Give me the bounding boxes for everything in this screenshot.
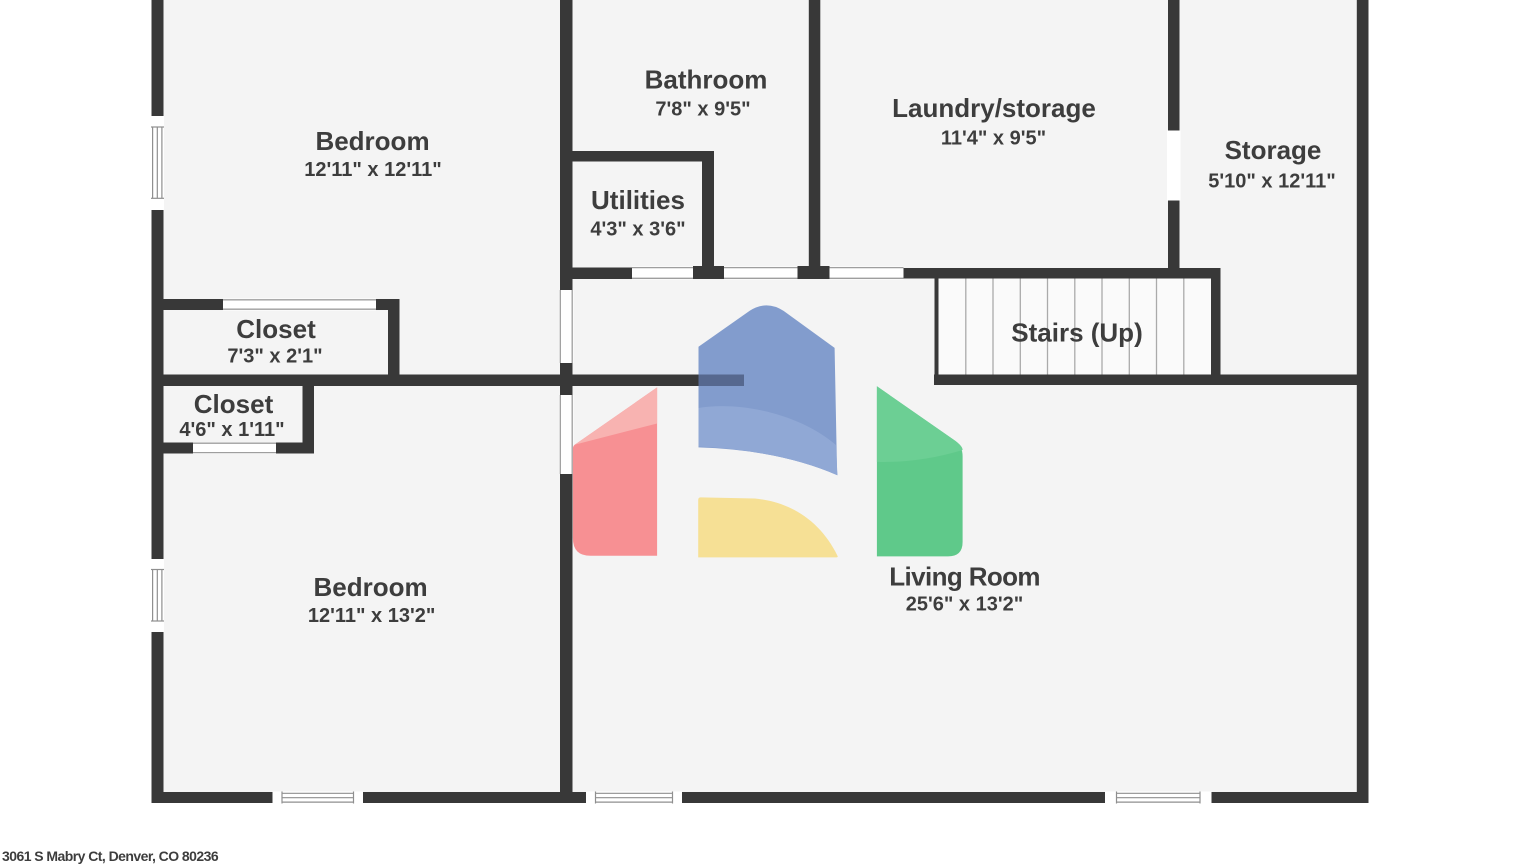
svg-text:Bathroom: Bathroom bbox=[645, 65, 768, 95]
svg-text:12'11" x 13'2": 12'11" x 13'2" bbox=[308, 605, 435, 627]
svg-text:Living Room: Living Room bbox=[889, 562, 1040, 592]
svg-text:7'3" x 2'1": 7'3" x 2'1" bbox=[227, 346, 322, 368]
svg-text:Bedroom: Bedroom bbox=[314, 572, 428, 602]
svg-text:4'6" x 1'11": 4'6" x 1'11" bbox=[179, 419, 284, 441]
svg-text:12'11" x 12'11": 12'11" x 12'11" bbox=[304, 159, 442, 181]
svg-text:Stairs (Up): Stairs (Up) bbox=[1011, 318, 1142, 348]
svg-text:Storage: Storage bbox=[1225, 135, 1322, 165]
svg-text:3061 S Mabry Ct, Denver, CO 80: 3061 S Mabry Ct, Denver, CO 80236 bbox=[2, 848, 219, 864]
svg-text:Utilities: Utilities bbox=[591, 185, 685, 215]
svg-text:Laundry/storage: Laundry/storage bbox=[892, 93, 1096, 123]
svg-text:7'8" x 9'5": 7'8" x 9'5" bbox=[655, 99, 750, 121]
svg-text:Closet: Closet bbox=[236, 314, 316, 344]
svg-text:5'10" x 12'11": 5'10" x 12'11" bbox=[1208, 171, 1335, 193]
svg-text:11'4" x 9'5": 11'4" x 9'5" bbox=[941, 128, 1046, 150]
svg-text:4'3" x 3'6": 4'3" x 3'6" bbox=[590, 219, 685, 241]
svg-text:25'6" x 13'2": 25'6" x 13'2" bbox=[906, 594, 1023, 616]
svg-text:Bedroom: Bedroom bbox=[315, 126, 429, 156]
svg-text:Closet: Closet bbox=[194, 389, 274, 419]
